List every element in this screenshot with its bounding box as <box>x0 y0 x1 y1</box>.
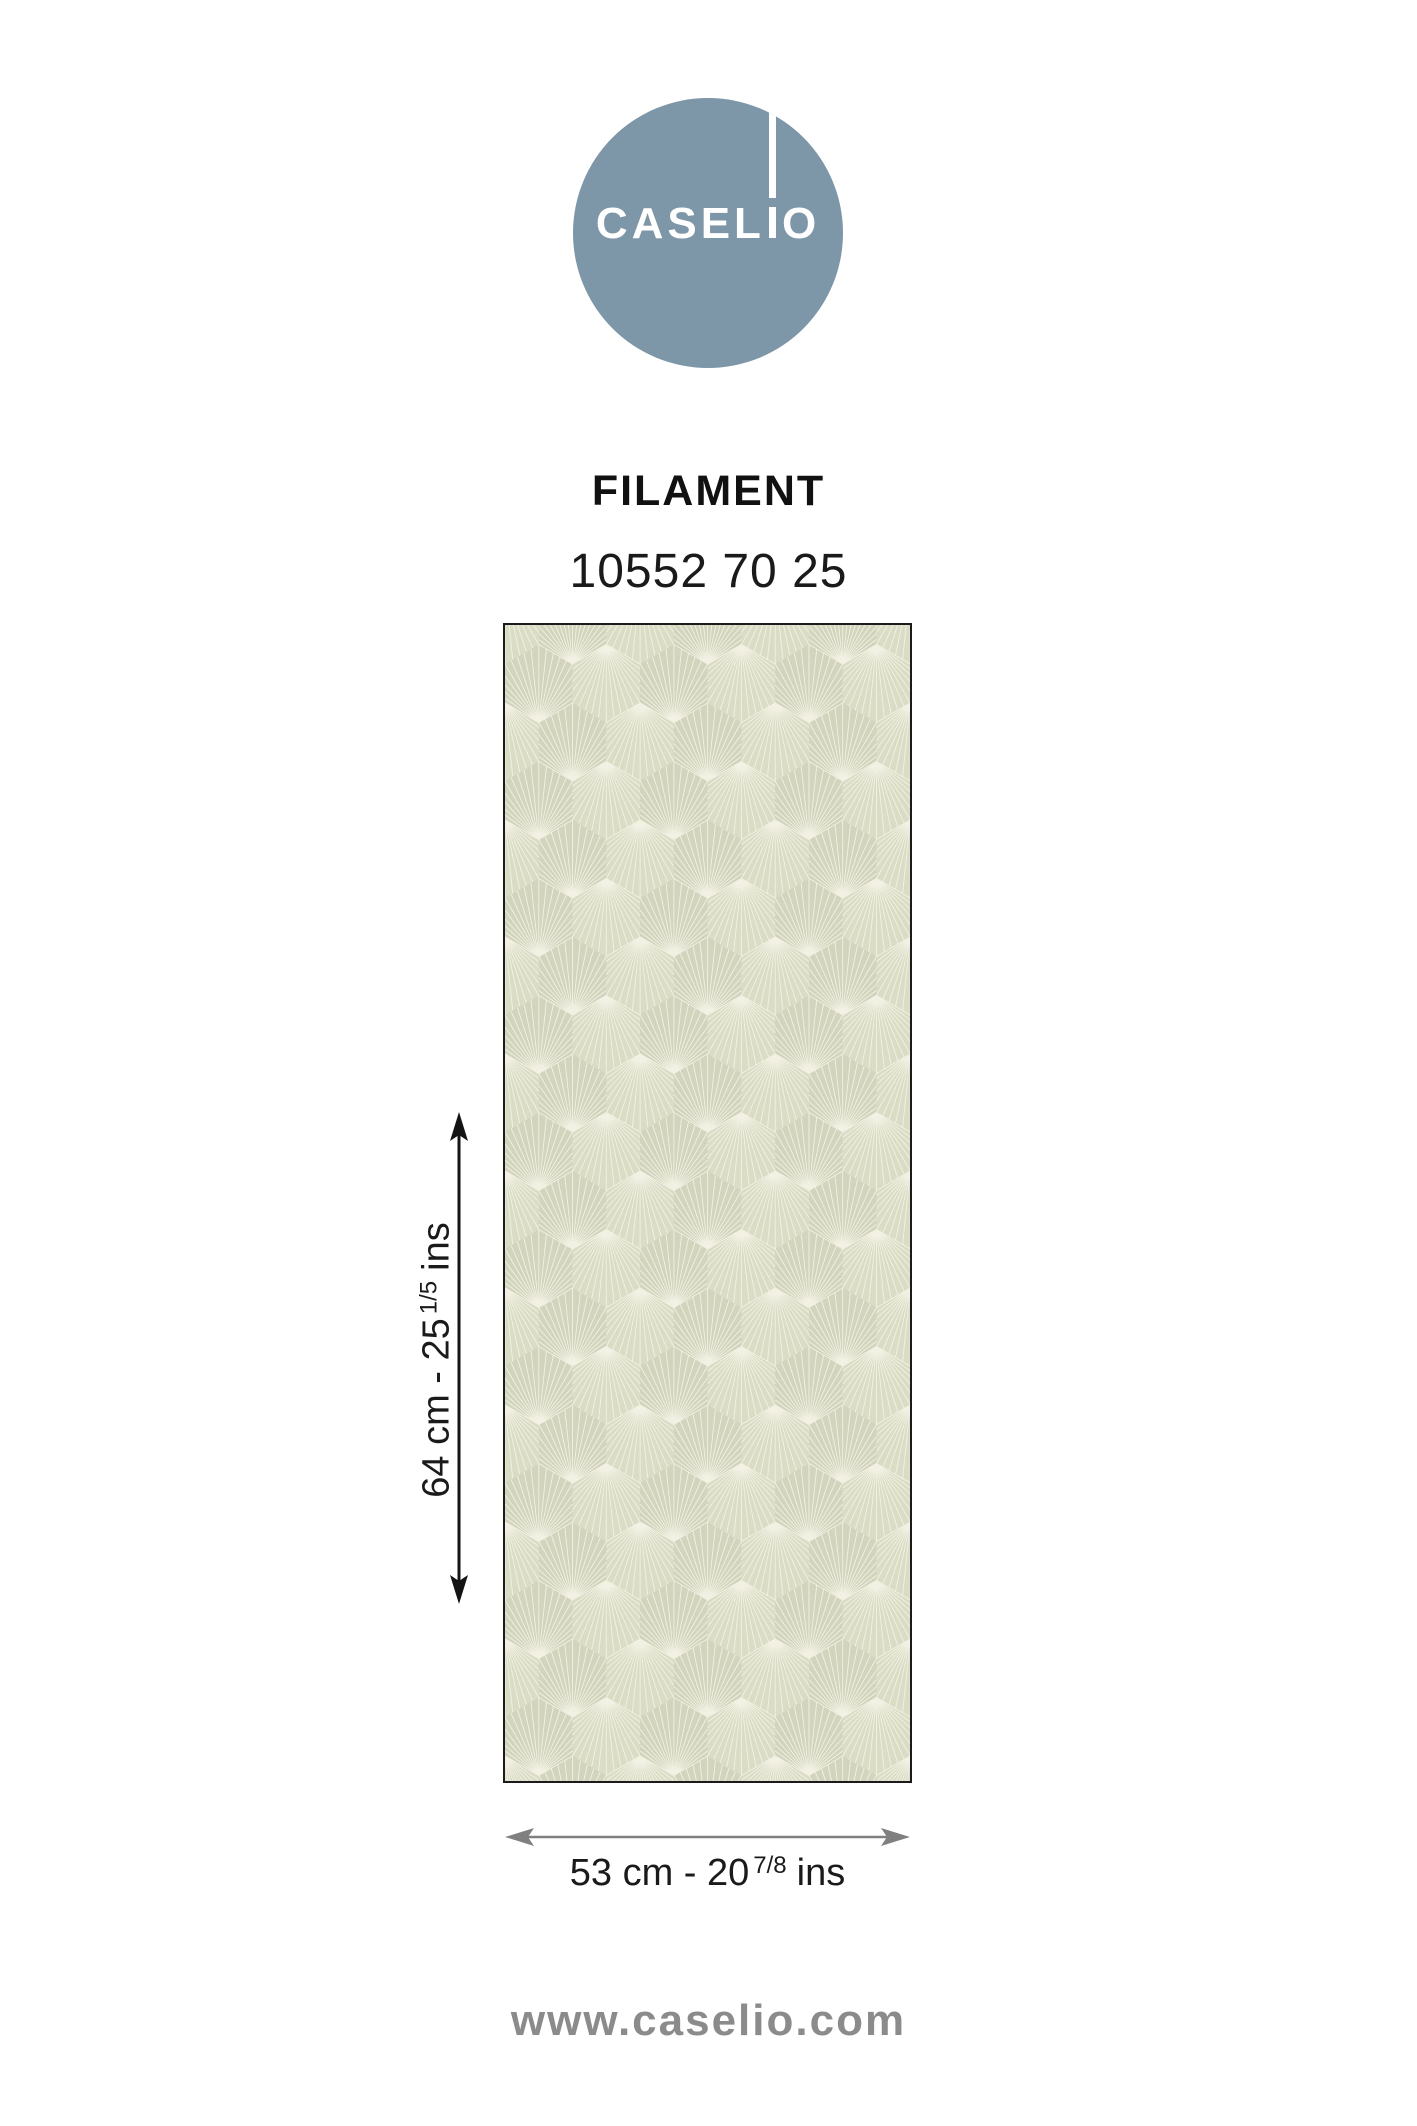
website-url[interactable]: www.caselio.com <box>0 1996 1417 2046</box>
swatch-pattern <box>505 625 910 1781</box>
height-fraction: 1/5 <box>416 1281 443 1314</box>
width-value: 53 cm - 20 <box>570 1852 750 1894</box>
caselio-logo: CASEL O <box>573 98 843 368</box>
height-unit: ins <box>416 1222 458 1271</box>
product-reference: 10552 70 25 <box>0 544 1417 600</box>
brand-text-prefix: CASEL <box>596 202 765 246</box>
width-dimension-arrow <box>503 1823 912 1851</box>
product-title: FILAMENT <box>0 467 1417 515</box>
height-value: 64 cm - 25 <box>416 1318 458 1498</box>
height-dimension-label: 64 cm - 251/5ins <box>416 1222 459 1497</box>
width-unit: ins <box>797 1852 846 1894</box>
brand-text-suffix: O <box>782 202 820 246</box>
logo-i-stem <box>769 207 776 238</box>
wallpaper-swatch <box>503 623 912 1783</box>
width-dimension-label: 53 cm - 207/8ins <box>503 1852 912 1895</box>
logo-filament-line <box>769 104 776 198</box>
width-fraction: 7/8 <box>753 1852 786 1879</box>
brand-wordmark: CASEL O <box>573 202 843 246</box>
brand-letter-i <box>769 207 776 238</box>
